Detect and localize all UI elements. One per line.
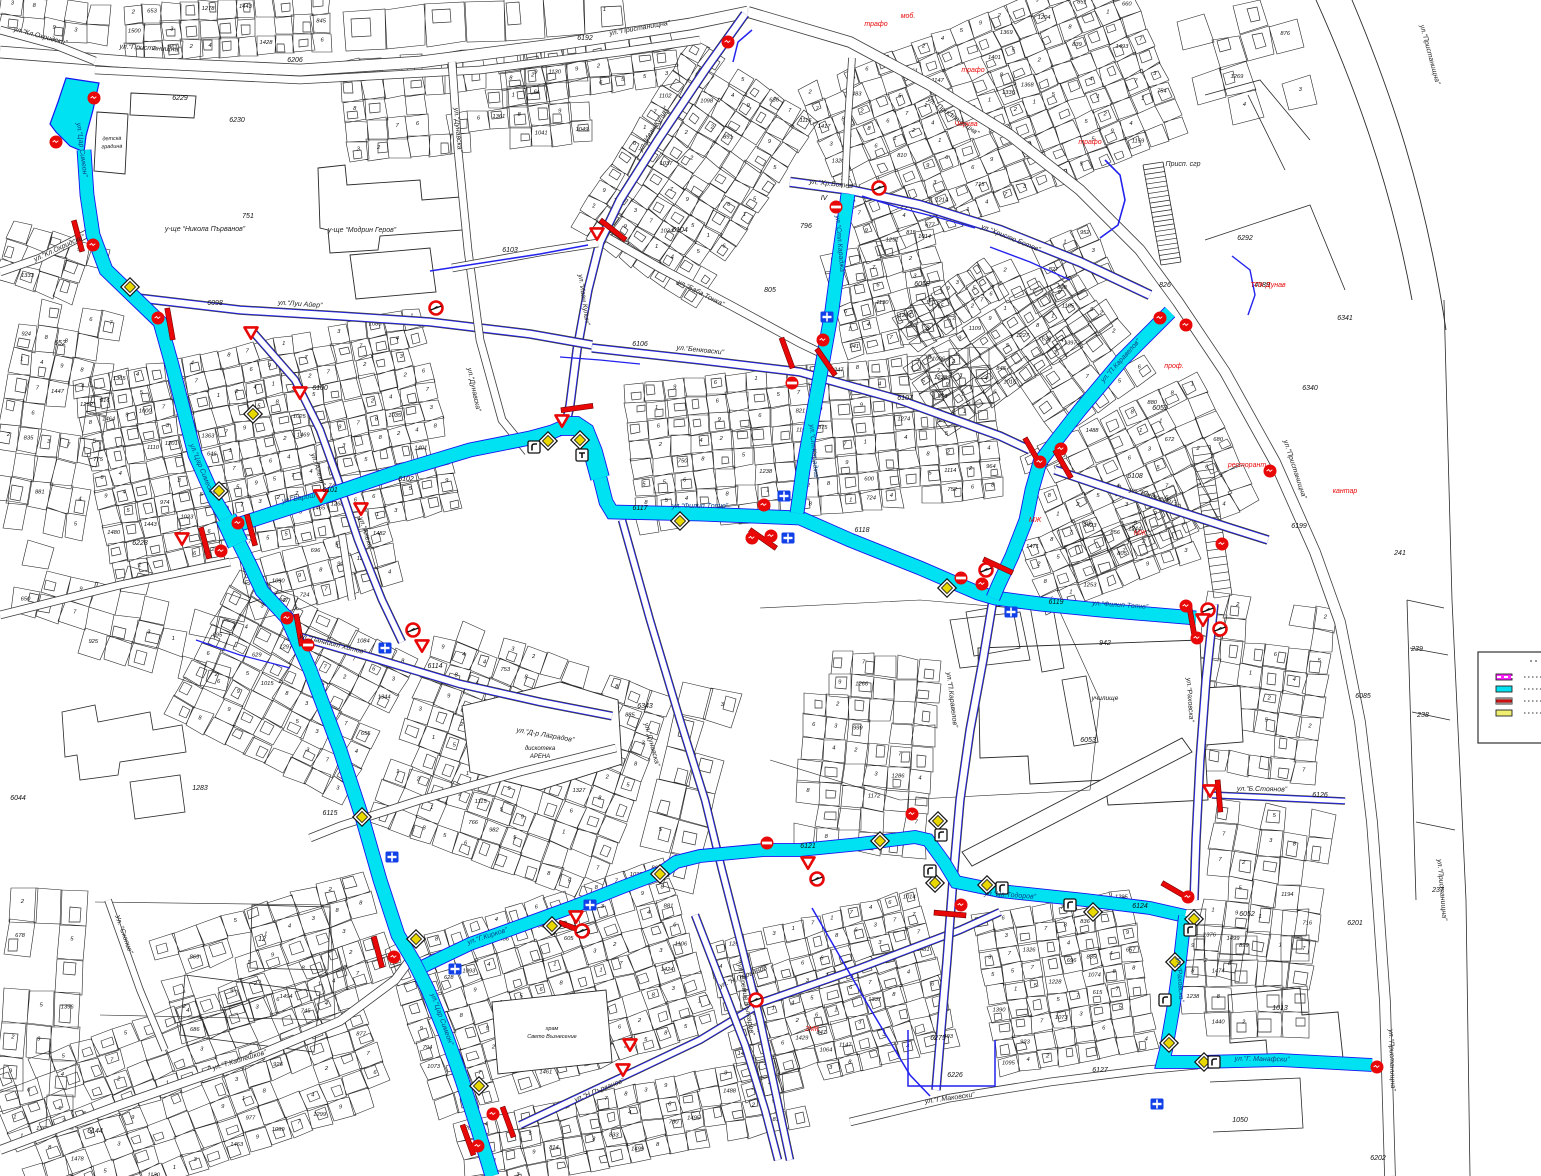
svg-text:923: 923	[1020, 1040, 1030, 1046]
svg-text:1363: 1363	[201, 433, 215, 439]
svg-text:1228: 1228	[1049, 979, 1063, 985]
svg-text:училище: училище	[1091, 695, 1119, 702]
svg-text:1428: 1428	[260, 40, 274, 46]
svg-text:1: 1	[792, 926, 795, 932]
svg-text:974: 974	[160, 500, 170, 506]
svg-text:1: 1	[1259, 914, 1262, 920]
svg-text:1443: 1443	[239, 4, 253, 10]
svg-text:1469: 1469	[297, 432, 311, 438]
svg-text:градина: градина	[101, 144, 122, 151]
svg-text:1106: 1106	[675, 941, 688, 947]
svg-text:1073: 1073	[1055, 1015, 1069, 1021]
svg-text:6121: 6121	[800, 843, 816, 850]
svg-text:1443: 1443	[144, 522, 158, 528]
svg-text:952: 952	[1080, 230, 1090, 236]
svg-text:810: 810	[897, 153, 907, 159]
svg-text:Присп. сгр: Присп. сгр	[1166, 161, 1201, 168]
svg-text:4: 4	[907, 969, 910, 975]
svg-text:1: 1	[376, 512, 379, 518]
svg-text:6085: 6085	[1355, 693, 1371, 700]
svg-text:1480: 1480	[107, 530, 121, 536]
svg-text:6202: 6202	[1370, 1155, 1386, 1162]
svg-text:4: 4	[878, 382, 881, 388]
svg-text:1: 1	[562, 829, 565, 835]
svg-text:4: 4	[462, 652, 465, 658]
svg-text:745: 745	[301, 1009, 311, 1015]
svg-text:1110: 1110	[147, 445, 160, 451]
svg-text:942: 942	[1099, 640, 1111, 647]
svg-text:1238: 1238	[1186, 994, 1200, 1000]
svg-text:650: 650	[21, 596, 31, 602]
svg-text:1: 1	[1069, 590, 1072, 596]
svg-text:Свето Възнесение: Свето Възнесение	[527, 1034, 576, 1040]
svg-text:1337: 1337	[868, 997, 882, 1003]
svg-text:6052: 6052	[1239, 911, 1255, 918]
svg-text:794: 794	[423, 1045, 433, 1051]
svg-text:4: 4	[245, 624, 248, 630]
svg-text:885: 885	[625, 712, 635, 718]
svg-text:1099: 1099	[272, 1127, 286, 1133]
svg-text:1093: 1093	[462, 968, 476, 974]
svg-text:4: 4	[309, 469, 312, 475]
svg-text:4: 4	[987, 445, 990, 451]
svg-text:4: 4	[869, 905, 872, 911]
svg-text:1: 1	[1139, 428, 1142, 434]
svg-text:1: 1	[553, 961, 556, 967]
svg-text:1365: 1365	[113, 376, 127, 382]
svg-text:953: 953	[938, 394, 948, 400]
svg-text:924: 924	[21, 332, 31, 338]
svg-text:856: 856	[1110, 530, 1120, 536]
svg-text:805: 805	[1117, 551, 1127, 557]
svg-text:1361: 1361	[492, 114, 505, 120]
svg-text:1297: 1297	[279, 645, 293, 651]
svg-text:1073: 1073	[427, 1064, 441, 1070]
svg-text:4: 4	[984, 376, 987, 382]
svg-text:1495: 1495	[687, 1115, 701, 1121]
svg-text:1488: 1488	[1086, 428, 1100, 434]
svg-text:1014: 1014	[903, 895, 916, 901]
svg-text:1: 1	[1106, 9, 1109, 15]
svg-text:1: 1	[1063, 239, 1066, 245]
svg-text:629: 629	[252, 653, 262, 659]
svg-text:1194: 1194	[1281, 892, 1293, 898]
svg-text:4: 4	[355, 749, 358, 755]
svg-text:835: 835	[24, 436, 34, 442]
svg-text:1: 1	[603, 7, 606, 13]
svg-text:1: 1	[643, 125, 646, 131]
svg-text:4: 4	[731, 93, 734, 99]
svg-text:1494: 1494	[280, 994, 293, 1000]
svg-text:1499: 1499	[1227, 936, 1241, 942]
svg-text:753: 753	[500, 667, 510, 673]
svg-text:1: 1	[1014, 986, 1017, 992]
svg-text:1266: 1266	[855, 682, 869, 688]
svg-text:1429: 1429	[795, 1035, 809, 1041]
svg-text:1: 1	[766, 487, 769, 493]
svg-text:4: 4	[287, 455, 290, 461]
svg-text:ТПК Дунав: ТПК Дунав	[1250, 282, 1286, 289]
svg-text:1424: 1424	[661, 967, 674, 973]
svg-text:6192: 6192	[577, 35, 593, 42]
svg-text:1115: 1115	[475, 799, 488, 805]
svg-text:1274: 1274	[897, 417, 910, 423]
svg-text:1049: 1049	[575, 127, 589, 133]
svg-text:1: 1	[599, 967, 602, 973]
svg-text:1390: 1390	[993, 1008, 1007, 1014]
svg-text:1114: 1114	[944, 468, 956, 474]
svg-text:241: 241	[1393, 550, 1406, 557]
svg-text:трафо: трафо	[961, 67, 984, 74]
svg-text:1396: 1396	[61, 1004, 75, 1010]
svg-text:724: 724	[866, 495, 876, 501]
svg-text:876: 876	[1280, 31, 1290, 37]
svg-text:237: 237	[1431, 887, 1445, 894]
svg-text:1: 1	[430, 805, 433, 811]
svg-text:875: 875	[818, 425, 828, 431]
svg-text:1: 1	[698, 999, 701, 1005]
svg-text:4: 4	[918, 775, 921, 781]
svg-text:1214: 1214	[935, 198, 948, 204]
svg-text:МЖ: МЖ	[1029, 517, 1042, 524]
svg-text:4: 4	[699, 438, 702, 444]
svg-text:851: 851	[1077, 0, 1087, 6]
svg-text:детска: детска	[102, 136, 121, 143]
svg-text:кантар: кантар	[1333, 488, 1358, 495]
svg-text:836: 836	[1080, 919, 1090, 925]
svg-text:1: 1	[282, 341, 285, 347]
svg-text:6101: 6101	[322, 487, 338, 494]
svg-text:4: 4	[78, 496, 81, 502]
svg-text:680: 680	[1213, 437, 1223, 443]
svg-text:1204: 1204	[1038, 15, 1051, 21]
svg-text:4: 4	[40, 360, 43, 366]
svg-text:АРЕНА: АРЕНА	[529, 754, 550, 760]
svg-text:1: 1	[242, 1096, 245, 1102]
svg-text:1130: 1130	[876, 300, 889, 306]
svg-text:1: 1	[173, 1165, 176, 1171]
svg-text:1401: 1401	[414, 446, 427, 452]
svg-text:941: 941	[849, 344, 859, 350]
svg-text:1: 1	[217, 393, 220, 399]
svg-text:6230: 6230	[229, 117, 245, 124]
svg-text:1: 1	[961, 392, 964, 398]
svg-text:трафо: трафо	[1078, 139, 1101, 146]
svg-text:1: 1	[924, 103, 927, 109]
svg-text:4: 4	[1145, 1036, 1148, 1042]
svg-text:1201: 1201	[165, 441, 178, 447]
svg-text:6100: 6100	[312, 385, 328, 392]
svg-text:1: 1	[1033, 100, 1036, 106]
svg-text:4: 4	[791, 1001, 794, 1007]
svg-text:ресторант: ресторант	[1227, 462, 1266, 469]
svg-text:982: 982	[489, 828, 499, 834]
svg-text:1423: 1423	[1084, 523, 1098, 529]
svg-text:1: 1	[1159, 419, 1162, 425]
svg-text:835: 835	[1086, 955, 1096, 961]
svg-text:1: 1	[172, 636, 175, 642]
svg-text:6059: 6059	[1152, 405, 1168, 412]
svg-text:239: 239	[1410, 646, 1423, 653]
svg-text:4: 4	[487, 962, 490, 968]
svg-text:1074: 1074	[1088, 972, 1101, 978]
svg-text:6053: 6053	[1080, 737, 1096, 744]
svg-text:845: 845	[316, 19, 326, 25]
svg-text:1: 1	[228, 448, 231, 454]
svg-text:1: 1	[1096, 94, 1099, 100]
svg-text:1: 1	[13, 1114, 16, 1120]
svg-text:1: 1	[830, 915, 833, 921]
svg-text:4: 4	[628, 1110, 631, 1116]
svg-text:1109: 1109	[969, 326, 982, 332]
svg-text:821: 821	[796, 409, 806, 415]
svg-text:1084: 1084	[357, 638, 370, 644]
svg-text:660: 660	[1122, 2, 1132, 8]
svg-text:6127: 6127	[1092, 1067, 1109, 1074]
svg-text:1: 1	[849, 497, 852, 503]
svg-text:1269: 1269	[1230, 74, 1244, 80]
svg-text:6199: 6199	[1291, 523, 1307, 530]
svg-text:6102: 6102	[398, 476, 414, 483]
svg-text:6126: 6126	[1312, 792, 1328, 799]
svg-text:1238: 1238	[759, 469, 773, 475]
svg-text:600: 600	[864, 477, 874, 483]
svg-text:1417: 1417	[818, 124, 832, 130]
svg-text:1: 1	[512, 93, 515, 99]
svg-text:1368: 1368	[1021, 82, 1035, 88]
svg-text:1: 1	[1141, 96, 1144, 102]
svg-text:1493: 1493	[1115, 44, 1129, 50]
svg-text:1488: 1488	[723, 1089, 737, 1095]
svg-text:1015: 1015	[261, 681, 275, 687]
svg-text:4: 4	[325, 1001, 328, 1007]
svg-text:6118: 6118	[854, 527, 869, 534]
svg-text:1: 1	[20, 357, 23, 363]
svg-text:845: 845	[996, 366, 1006, 372]
svg-text:Черква: Черква	[954, 121, 977, 128]
svg-text:891: 891	[723, 134, 733, 140]
svg-text:1333: 1333	[21, 273, 35, 279]
svg-text:1500: 1500	[128, 28, 142, 34]
svg-text:1336: 1336	[1002, 90, 1016, 96]
svg-text:1: 1	[754, 376, 757, 382]
svg-text:1482: 1482	[373, 531, 387, 537]
svg-text:672: 672	[1165, 437, 1175, 443]
svg-text:1: 1	[1051, 313, 1054, 319]
svg-text:1102: 1102	[659, 94, 672, 100]
svg-text:6229: 6229	[172, 95, 188, 102]
svg-text:1147: 1147	[839, 1042, 852, 1048]
svg-text:1252: 1252	[80, 402, 94, 408]
svg-text:826: 826	[1159, 282, 1171, 289]
svg-text:1238: 1238	[934, 375, 948, 381]
svg-text:1278: 1278	[202, 6, 216, 12]
svg-text:646: 646	[207, 452, 217, 458]
svg-text:833: 833	[609, 1132, 619, 1138]
svg-text:4: 4	[311, 1093, 314, 1099]
svg-text:881: 881	[664, 903, 674, 909]
svg-text:1447: 1447	[51, 389, 65, 395]
svg-text:1: 1	[864, 440, 867, 446]
svg-text:926: 926	[273, 1062, 283, 1068]
svg-text:у-ще “Никола Първанов”: у-ще “Никола Първанов”	[164, 226, 246, 233]
svg-text:4: 4	[495, 917, 498, 923]
svg-text:4: 4	[685, 496, 688, 502]
svg-text:775: 775	[93, 457, 103, 463]
svg-text:4: 4	[1067, 940, 1070, 946]
svg-text:1: 1	[848, 327, 851, 333]
svg-text:4: 4	[1293, 677, 1296, 683]
svg-text:1159: 1159	[1132, 138, 1145, 144]
svg-text:ул.“Филип Тотю”: ул.“Филип Тотю”	[671, 503, 729, 510]
svg-text:730: 730	[669, 1120, 679, 1126]
svg-text:4: 4	[123, 490, 126, 496]
svg-text:615: 615	[1093, 990, 1103, 996]
svg-text:696: 696	[1067, 958, 1077, 964]
svg-text:977: 977	[246, 1115, 256, 1121]
svg-text:1227: 1227	[1016, 333, 1030, 339]
svg-text:моб.: моб.	[901, 12, 916, 20]
svg-text:1: 1	[272, 381, 275, 387]
svg-text:6107: 6107	[897, 395, 914, 402]
svg-text:653: 653	[147, 9, 157, 15]
svg-text:6117: 6117	[632, 505, 648, 512]
svg-text:1: 1	[772, 1006, 775, 1012]
svg-text:4: 4	[136, 372, 139, 378]
svg-text:1: 1	[655, 405, 658, 411]
svg-text:6108: 6108	[1127, 473, 1143, 480]
svg-text:4: 4	[119, 471, 122, 477]
svg-text:677: 677	[925, 222, 935, 228]
svg-text:1: 1	[928, 298, 931, 304]
svg-text:1: 1	[466, 771, 469, 777]
svg-text:1: 1	[432, 735, 435, 741]
svg-text:6341: 6341	[1337, 315, 1353, 322]
svg-text:1000: 1000	[139, 409, 153, 415]
svg-text:1: 1	[966, 207, 969, 213]
svg-text:4: 4	[671, 254, 674, 260]
svg-text:657: 657	[1126, 948, 1136, 954]
svg-text:4: 4	[1222, 502, 1225, 508]
svg-text:1: 1	[1056, 512, 1059, 518]
svg-text:4: 4	[902, 213, 905, 219]
svg-text:1014: 1014	[918, 234, 931, 240]
svg-text:4: 4	[985, 200, 988, 206]
svg-text:1: 1	[655, 244, 658, 250]
svg-text:4: 4	[483, 660, 486, 666]
svg-text:4: 4	[389, 395, 392, 401]
svg-text:1344: 1344	[378, 695, 391, 701]
svg-text:805: 805	[764, 287, 776, 294]
svg-text:766: 766	[468, 820, 478, 826]
svg-text:754: 754	[1157, 88, 1167, 94]
svg-text:6103: 6103	[502, 247, 518, 254]
svg-text:6119: 6119	[1048, 599, 1063, 606]
svg-text:1023: 1023	[180, 514, 194, 520]
svg-text:1090: 1090	[272, 579, 286, 585]
svg-text:652: 652	[54, 340, 66, 347]
svg-text:964: 964	[986, 464, 996, 470]
svg-text:999: 999	[853, 726, 863, 732]
svg-text:4: 4	[1109, 951, 1112, 957]
svg-text:1035: 1035	[388, 413, 402, 419]
svg-text:724: 724	[300, 592, 310, 598]
svg-text:1461: 1461	[539, 1069, 552, 1075]
svg-text:4: 4	[832, 746, 835, 752]
svg-text:2МК: 2МК	[804, 1026, 820, 1033]
svg-text:1130: 1130	[147, 1172, 160, 1176]
svg-text:4: 4	[485, 1121, 488, 1127]
svg-text:1: 1	[743, 212, 746, 218]
svg-text:4: 4	[941, 36, 944, 42]
svg-text:1130: 1130	[548, 70, 561, 76]
svg-text:4: 4	[647, 910, 650, 916]
svg-text:1: 1	[1191, 381, 1194, 387]
svg-text:4: 4	[1026, 1057, 1029, 1063]
svg-text:1369: 1369	[1000, 30, 1014, 36]
svg-text:6058: 6058	[914, 281, 930, 288]
svg-text:1: 1	[917, 359, 920, 365]
svg-text:1050: 1050	[1232, 1117, 1248, 1124]
svg-text:796: 796	[800, 223, 812, 230]
svg-text:751: 751	[242, 213, 254, 220]
svg-text:750: 750	[678, 459, 688, 465]
svg-text:6104: 6104	[672, 227, 688, 234]
svg-text:4: 4	[288, 924, 291, 930]
svg-text:1: 1	[707, 233, 710, 239]
svg-text:4: 4	[396, 336, 399, 342]
svg-text:4: 4	[61, 1072, 64, 1078]
svg-text:6206: 6206	[287, 57, 303, 64]
svg-text:1: 1	[396, 769, 399, 775]
svg-text:1098: 1098	[700, 98, 714, 104]
svg-text:1464: 1464	[102, 416, 115, 422]
svg-text:4: 4	[186, 1008, 189, 1014]
svg-text:1440: 1440	[1212, 1020, 1226, 1026]
svg-text:1: 1	[1211, 907, 1214, 913]
svg-text:1: 1	[834, 1008, 837, 1014]
svg-text:6340: 6340	[1302, 385, 1318, 392]
svg-text:1006: 1006	[932, 357, 946, 363]
svg-text:839: 839	[1072, 42, 1082, 48]
svg-text:1474: 1474	[1212, 969, 1225, 975]
svg-text:881: 881	[35, 489, 45, 495]
svg-text:1401: 1401	[988, 55, 1001, 61]
svg-text:655: 655	[361, 731, 371, 737]
svg-text:6228: 6228	[132, 540, 148, 547]
svg-text:1: 1	[1003, 306, 1006, 312]
svg-text:1283: 1283	[192, 785, 208, 792]
svg-text:6292: 6292	[1237, 235, 1253, 242]
svg-text:814: 814	[549, 1145, 559, 1151]
svg-text:6343: 6343	[637, 703, 653, 710]
svg-text:6275: 6275	[930, 1035, 946, 1042]
svg-text:МЖ: МЖ	[1134, 530, 1147, 537]
svg-text:238: 238	[1416, 712, 1429, 719]
svg-text:6106: 6106	[632, 341, 648, 348]
svg-text:6144: 6144	[87, 1128, 103, 1135]
svg-text:6114: 6114	[427, 663, 442, 670]
svg-text:4: 4	[890, 493, 893, 499]
svg-text:1025: 1025	[293, 414, 307, 420]
svg-text:869: 869	[190, 955, 200, 961]
svg-text:4: 4	[415, 427, 418, 433]
svg-text:1471: 1471	[1026, 544, 1039, 550]
svg-text:698: 698	[1057, 285, 1067, 291]
svg-text:1: 1	[938, 138, 941, 144]
svg-text:638: 638	[1042, 337, 1052, 343]
svg-text:6201: 6201	[1347, 920, 1363, 927]
